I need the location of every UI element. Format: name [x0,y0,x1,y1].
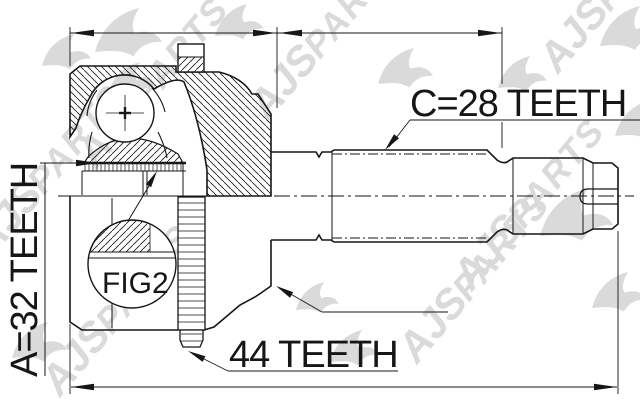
fig2-balloon: FIG2 [88,171,176,308]
abs-tone-ring-view [178,197,205,347]
fig2-leader-arrow [146,171,157,187]
fig2-leader-line [128,186,149,221]
label-abs-ring-teeth: 44 TEETH [229,334,398,376]
watermark-swoosh-icon [95,8,162,56]
label-figure-reference: FIG2 [102,267,169,300]
label-hub-spline-count: A=32 TEETH [4,163,46,377]
label-shaft-spline-count: C=28 TEETH [410,83,626,125]
ball-bearing [96,84,154,142]
drawing-canvas: AJS PARTS [0,0,640,400]
cv-joint-technical-drawing: AJS PARTS [0,0,640,400]
abs-tone-ring-section [178,44,204,72]
